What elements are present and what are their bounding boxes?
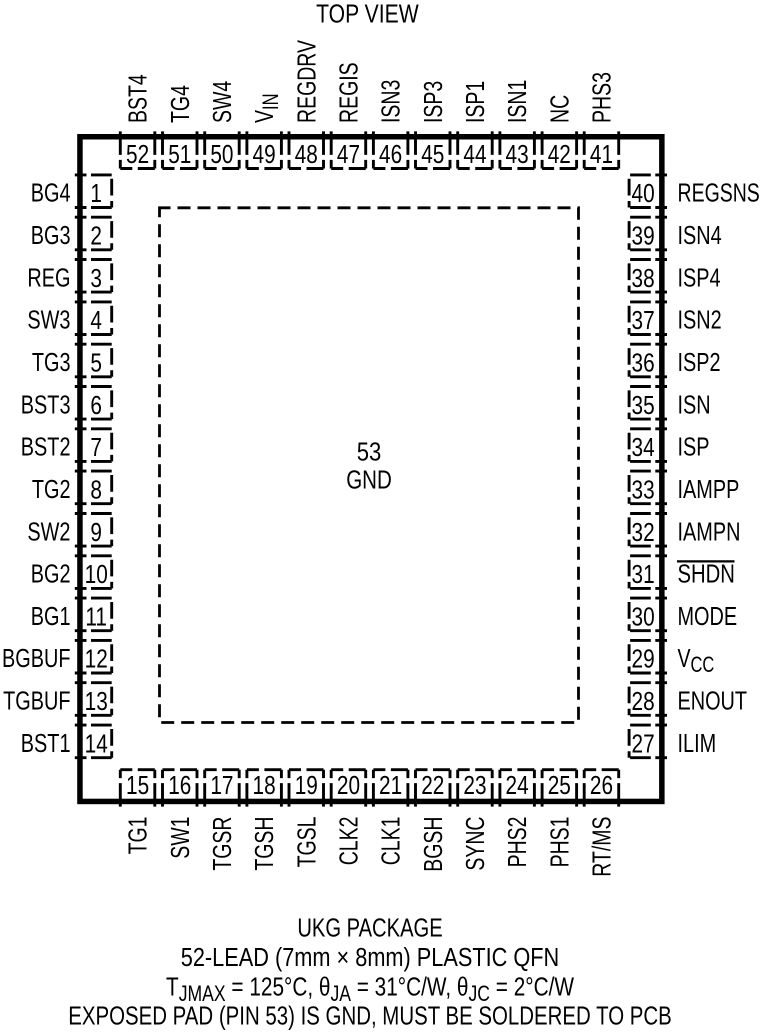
svg-text:36: 36 xyxy=(632,348,655,377)
svg-text:SW4: SW4 xyxy=(207,81,236,123)
svg-text:ISN4: ISN4 xyxy=(678,220,722,249)
svg-text:TGSL: TGSL xyxy=(292,816,321,867)
svg-text:1: 1 xyxy=(90,179,102,208)
svg-text:33: 33 xyxy=(632,475,655,504)
svg-text:17: 17 xyxy=(210,771,233,800)
svg-text:BG4: BG4 xyxy=(31,178,71,207)
svg-text:BST4: BST4 xyxy=(123,74,152,123)
svg-text:46: 46 xyxy=(379,140,402,169)
svg-text:15: 15 xyxy=(126,771,149,800)
svg-text:7: 7 xyxy=(90,433,102,462)
svg-text:ENOUT: ENOUT xyxy=(678,686,748,715)
svg-text:13: 13 xyxy=(85,687,108,716)
svg-text:BST2: BST2 xyxy=(21,432,71,461)
svg-text:51: 51 xyxy=(168,140,191,169)
svg-text:CLK2: CLK2 xyxy=(334,817,363,866)
svg-text:TG1: TG1 xyxy=(123,817,152,855)
svg-text:20: 20 xyxy=(337,771,360,800)
svg-text:45: 45 xyxy=(421,140,444,169)
svg-text:SHDN: SHDN xyxy=(678,559,735,588)
svg-text:30: 30 xyxy=(632,602,655,631)
svg-text:SW1: SW1 xyxy=(165,817,194,859)
svg-text:UKG PACKAGE: UKG PACKAGE xyxy=(297,913,442,942)
svg-text:4: 4 xyxy=(90,306,102,335)
svg-text:PHS2: PHS2 xyxy=(502,817,531,868)
svg-text:32: 32 xyxy=(632,518,655,547)
svg-text:49: 49 xyxy=(253,140,276,169)
svg-text:BG1: BG1 xyxy=(31,601,71,630)
svg-text:TGSH: TGSH xyxy=(249,817,278,871)
svg-text:29: 29 xyxy=(632,645,655,674)
svg-text:BG2: BG2 xyxy=(31,559,71,588)
svg-text:EXPOSED PAD (PIN 53) IS GND, M: EXPOSED PAD (PIN 53) IS GND, MUST BE SOL… xyxy=(68,1001,672,1030)
svg-text:41: 41 xyxy=(590,140,613,169)
svg-text:12: 12 xyxy=(85,645,108,674)
svg-text:21: 21 xyxy=(379,771,402,800)
svg-text:ISN: ISN xyxy=(678,390,711,419)
svg-text:ISN1: ISN1 xyxy=(502,80,531,123)
svg-text:REGSNS: REGSNS xyxy=(678,178,760,207)
svg-text:REGDRV: REGDRV xyxy=(292,39,321,123)
svg-text:RT/MS: RT/MS xyxy=(587,817,616,877)
svg-text:52-LEAD (7mm × 8mm) PLASTIC QF: 52-LEAD (7mm × 8mm) PLASTIC QFN xyxy=(181,943,559,972)
svg-text:TG3: TG3 xyxy=(32,347,71,376)
svg-text:16: 16 xyxy=(168,771,191,800)
svg-text:TGSR: TGSR xyxy=(207,817,236,871)
svg-text:14: 14 xyxy=(85,729,108,758)
svg-text:38: 38 xyxy=(632,264,655,293)
svg-text:47: 47 xyxy=(337,140,360,169)
svg-text:27: 27 xyxy=(632,729,655,758)
svg-text:TG4: TG4 xyxy=(165,85,194,123)
svg-text:44: 44 xyxy=(463,140,486,169)
svg-text:NC: NC xyxy=(545,95,574,123)
svg-text:IAMPP: IAMPP xyxy=(678,474,740,503)
svg-text:PHS3: PHS3 xyxy=(587,72,616,123)
svg-text:ISP4: ISP4 xyxy=(678,263,721,292)
svg-text:19: 19 xyxy=(295,771,318,800)
svg-text:SW2: SW2 xyxy=(27,517,70,546)
svg-text:SYNC: SYNC xyxy=(460,817,489,871)
svg-text:35: 35 xyxy=(632,391,655,420)
svg-text:IAMPN: IAMPN xyxy=(678,517,741,546)
svg-text:ISN2: ISN2 xyxy=(678,305,722,334)
svg-text:3: 3 xyxy=(90,264,102,293)
svg-text:18: 18 xyxy=(253,771,276,800)
svg-text:52: 52 xyxy=(126,140,149,169)
svg-text:ISP3: ISP3 xyxy=(418,81,447,123)
svg-text:6: 6 xyxy=(90,391,102,420)
svg-text:48: 48 xyxy=(295,140,318,169)
svg-text:31: 31 xyxy=(632,560,655,589)
svg-text:39: 39 xyxy=(632,221,655,250)
svg-text:TG2: TG2 xyxy=(32,474,71,503)
svg-text:BGSH: BGSH xyxy=(418,817,447,872)
svg-text:37: 37 xyxy=(632,306,655,335)
svg-text:BGBUF: BGBUF xyxy=(2,644,70,673)
svg-text:11: 11 xyxy=(85,602,107,631)
svg-text:40: 40 xyxy=(632,179,655,208)
svg-text:ISP: ISP xyxy=(678,432,710,461)
svg-text:BST1: BST1 xyxy=(21,728,71,757)
svg-text:TOP VIEW: TOP VIEW xyxy=(316,1,419,30)
svg-text:ISP1: ISP1 xyxy=(460,81,489,123)
svg-text:SW3: SW3 xyxy=(27,305,70,334)
svg-text:26: 26 xyxy=(590,771,613,800)
svg-text:MODE: MODE xyxy=(678,601,738,630)
svg-text:ISP2: ISP2 xyxy=(678,347,721,376)
svg-text:50: 50 xyxy=(210,140,233,169)
svg-text:25: 25 xyxy=(548,771,571,800)
svg-text:GND: GND xyxy=(346,465,392,494)
svg-text:43: 43 xyxy=(506,140,529,169)
svg-text:CLK1: CLK1 xyxy=(376,817,405,866)
svg-text:BST3: BST3 xyxy=(21,390,71,419)
svg-text:2: 2 xyxy=(90,221,102,250)
svg-text:PHS1: PHS1 xyxy=(545,817,574,868)
svg-text:8: 8 xyxy=(90,475,102,504)
svg-text:5: 5 xyxy=(90,348,102,377)
svg-text:34: 34 xyxy=(632,433,655,462)
svg-text:ISN3: ISN3 xyxy=(376,80,405,123)
svg-text:24: 24 xyxy=(506,771,529,800)
svg-text:28: 28 xyxy=(632,687,655,716)
svg-text:42: 42 xyxy=(548,140,571,169)
svg-text:9: 9 xyxy=(90,518,102,547)
svg-text:BG3: BG3 xyxy=(31,220,71,249)
svg-text:TGBUF: TGBUF xyxy=(3,686,70,715)
svg-text:22: 22 xyxy=(421,771,444,800)
svg-text:23: 23 xyxy=(463,771,486,800)
svg-text:10: 10 xyxy=(85,560,108,589)
svg-text:ILIM: ILIM xyxy=(678,728,717,757)
svg-text:53: 53 xyxy=(357,438,382,467)
svg-text:REGIS: REGIS xyxy=(334,62,363,123)
svg-text:REG: REG xyxy=(27,263,70,292)
